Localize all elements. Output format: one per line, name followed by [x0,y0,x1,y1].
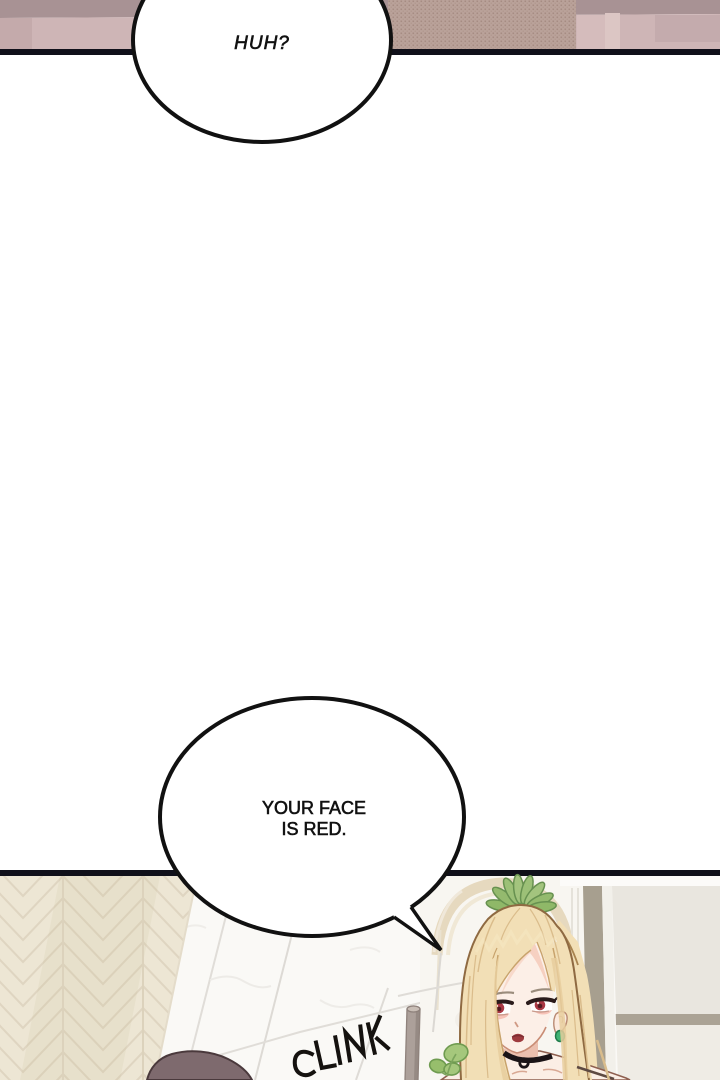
svg-text:YOUR FACE: YOUR FACE [262,798,366,818]
svg-text:IS RED.: IS RED. [281,819,346,839]
svg-text:HUH?: HUH? [234,33,290,54]
